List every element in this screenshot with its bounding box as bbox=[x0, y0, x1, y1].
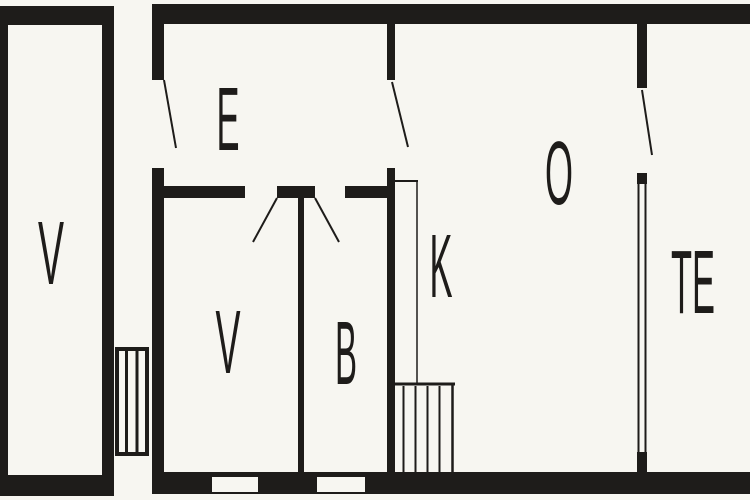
e-room-wall-segment bbox=[152, 186, 245, 198]
room-label-v: V bbox=[216, 293, 241, 393]
bottom-window-notch bbox=[317, 477, 365, 492]
entry-door-leaf bbox=[164, 80, 176, 148]
k-room-door-leaf bbox=[392, 82, 408, 147]
left-exterior-wall-upper bbox=[152, 4, 164, 80]
ladder-outline bbox=[117, 349, 147, 454]
floor-plan-canvas: V E V B K O TE bbox=[0, 0, 750, 500]
room-labels: V E V B K O TE bbox=[38, 70, 715, 404]
bottom-window-notch bbox=[212, 477, 258, 492]
room-label-k: K bbox=[430, 217, 453, 317]
left-exterior-wall-lower bbox=[152, 168, 164, 494]
room-label-e: E bbox=[217, 70, 240, 170]
k-wall-upper bbox=[387, 24, 395, 80]
b-room-door-leaf bbox=[315, 198, 339, 242]
v-room-door-leaf bbox=[253, 198, 277, 242]
o-te-wall-stub-bottom bbox=[637, 452, 647, 472]
e-room-wall-segment bbox=[277, 186, 315, 198]
o-te-wall-upper bbox=[637, 24, 647, 88]
v-b-divider-wall bbox=[298, 196, 304, 472]
k-wall-lower bbox=[387, 168, 395, 472]
o-te-wall-stub-top bbox=[637, 173, 647, 184]
room-label-b: B bbox=[335, 304, 357, 404]
room-label-annex-v: V bbox=[38, 204, 64, 304]
floor-plan: V E V B K O TE bbox=[0, 0, 750, 500]
top-exterior-wall bbox=[152, 4, 750, 24]
room-label-te: TE bbox=[671, 233, 715, 333]
te-room-door-leaf bbox=[642, 90, 652, 155]
room-label-o: O bbox=[545, 124, 573, 224]
passage-ladder bbox=[117, 349, 147, 454]
